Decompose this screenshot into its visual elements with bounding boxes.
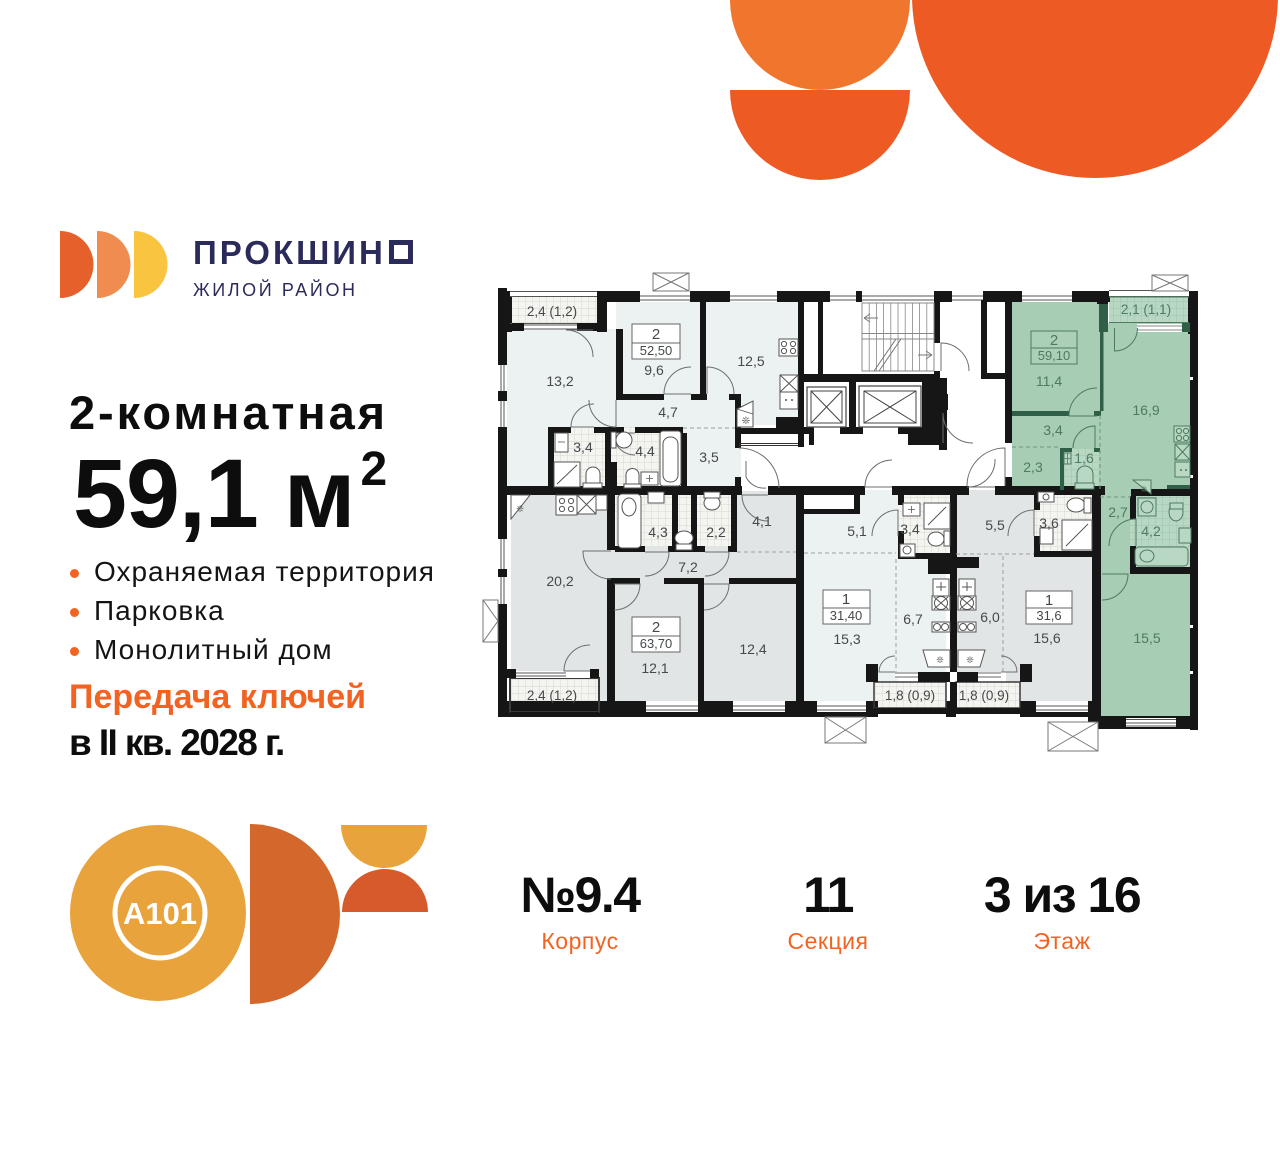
svg-text:16,9: 16,9 (1132, 402, 1159, 418)
svg-text:2,4 (1,2): 2,4 (1,2) (527, 688, 577, 703)
svg-text:2: 2 (652, 326, 660, 343)
svg-text:2,7: 2,7 (1108, 504, 1128, 520)
svg-text:❊: ❊ (516, 504, 524, 514)
svg-text:3,6: 3,6 (1039, 515, 1059, 531)
svg-text:1: 1 (842, 591, 850, 608)
svg-text:2,1 (1,1): 2,1 (1,1) (1121, 302, 1171, 317)
svg-text:3,4: 3,4 (573, 439, 593, 455)
svg-text:2: 2 (652, 619, 660, 636)
svg-text:31,40: 31,40 (830, 608, 863, 623)
svg-text:63,70: 63,70 (640, 636, 673, 651)
svg-text:❊: ❊ (742, 416, 750, 427)
svg-text:12,5: 12,5 (737, 353, 764, 369)
svg-text:52,50: 52,50 (640, 343, 673, 358)
svg-text:13,2: 13,2 (546, 373, 573, 389)
svg-text:31,6: 31,6 (1036, 608, 1061, 623)
svg-text:4,2: 4,2 (1141, 523, 1161, 539)
svg-text:7,2: 7,2 (678, 559, 698, 575)
svg-text:❊: ❊ (1141, 485, 1148, 494)
svg-text:15,5: 15,5 (1133, 630, 1160, 646)
svg-text:3,4: 3,4 (1043, 422, 1063, 438)
svg-text:12,4: 12,4 (739, 641, 766, 657)
svg-text:❊: ❊ (936, 655, 944, 665)
svg-text:2,3: 2,3 (1023, 459, 1043, 475)
svg-text:6,7: 6,7 (903, 611, 923, 627)
svg-text:❊: ❊ (966, 655, 974, 665)
svg-text:4,4: 4,4 (635, 443, 655, 459)
svg-text:2: 2 (1050, 332, 1058, 349)
svg-text:4,7: 4,7 (658, 404, 678, 420)
svg-text:2,2: 2,2 (706, 524, 726, 540)
svg-text:15,6: 15,6 (1033, 630, 1060, 646)
svg-text:4,1: 4,1 (752, 513, 772, 529)
svg-text:4,3: 4,3 (648, 524, 668, 540)
svg-text:11,4: 11,4 (1036, 373, 1062, 389)
svg-text:9,6: 9,6 (644, 362, 664, 378)
svg-text:1,8 (0,9): 1,8 (0,9) (959, 688, 1009, 703)
svg-text:59,10: 59,10 (1038, 348, 1071, 363)
svg-text:1,8 (0,9): 1,8 (0,9) (885, 688, 935, 703)
svg-text:5,1: 5,1 (847, 523, 867, 539)
svg-text:5,5: 5,5 (985, 517, 1005, 533)
svg-text:1: 1 (1045, 592, 1053, 609)
svg-text:12,1: 12,1 (641, 660, 668, 676)
svg-text:3,5: 3,5 (699, 449, 719, 465)
svg-text:3,4: 3,4 (900, 521, 920, 537)
svg-text:15,3: 15,3 (833, 631, 860, 647)
svg-text:20,2: 20,2 (546, 573, 573, 589)
svg-text:6,0: 6,0 (980, 609, 1000, 625)
svg-text:1,6: 1,6 (1074, 450, 1094, 466)
svg-text:2,4 (1,2): 2,4 (1,2) (527, 304, 577, 319)
